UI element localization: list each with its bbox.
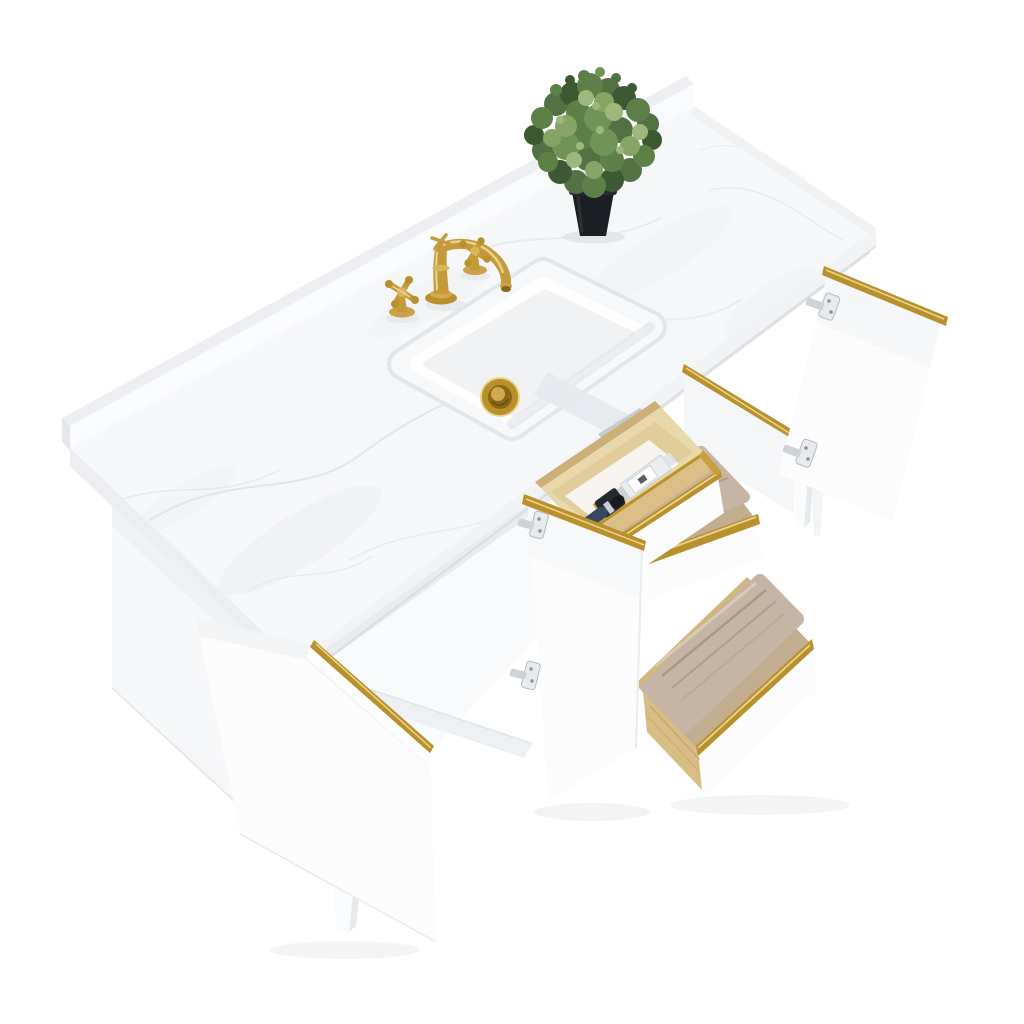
center-door-shadow [534, 803, 650, 821]
left-door-shadow [270, 941, 420, 959]
product-photo-bathroom-vanity [0, 0, 1024, 1024]
drawer-bottom-shadow [670, 795, 850, 815]
vanity-illustration [0, 0, 1024, 1024]
sink-drain [481, 378, 519, 416]
